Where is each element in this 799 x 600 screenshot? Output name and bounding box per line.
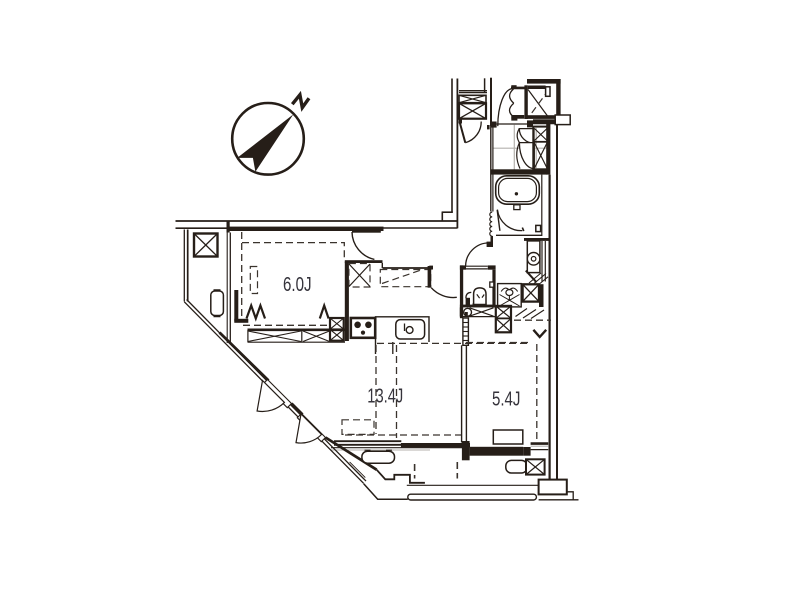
svg-text:6.0J: 6.0J bbox=[283, 274, 312, 296]
svg-text:5.4J: 5.4J bbox=[492, 389, 521, 411]
svg-text:13.4J: 13.4J bbox=[367, 386, 403, 408]
